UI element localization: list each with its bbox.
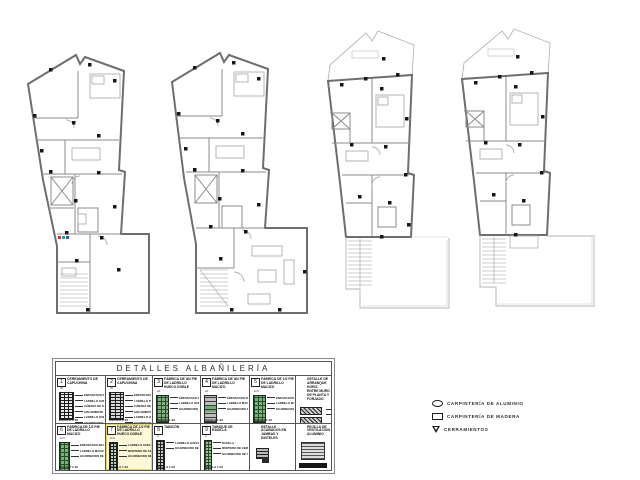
detail-number: 4	[202, 378, 211, 387]
detail-labels: LADRILLO HUECO DOBLEGUARNECIDO DE YESO	[166, 441, 199, 451]
floor-plan-2	[160, 22, 315, 322]
detail-drawing	[109, 392, 124, 420]
detail-label: LADRILLO HUECO DOBLE	[166, 441, 199, 445]
detail-dimension: 11.5	[110, 437, 151, 440]
legend-label: CARPINTERÍA DE MADERA	[447, 414, 520, 419]
detail-label: ENFOSCADO DE MORTERO 1:6	[267, 396, 294, 400]
detail-label: GUARNECIDO DE YESO	[119, 454, 151, 458]
detail-label: CÁMARA DE AIRE	[125, 404, 151, 408]
detail-label: LADRILLO PERFORADO VISTO	[125, 399, 151, 403]
legend-item: CARPINTERÍA DE ALUMINIO	[432, 397, 552, 410]
detail-label: GUARNECIDO DE YESO	[213, 452, 248, 456]
detail-label: ENFOSCADO DE MORTERO 1:6	[125, 393, 151, 397]
detail-drawing	[301, 442, 325, 460]
detail-cell: DETALLE ACABADOS EN JAMBAS Y DINTELES	[250, 424, 296, 471]
detail-label: LADRILLO MACIZO	[267, 401, 294, 405]
floor-plan-3	[320, 25, 460, 315]
detail-labels: RASILLAMORTERO DE CEMENTOGUARNECIDO DE Y…	[213, 441, 248, 456]
detail-title: FÁBRICA DE 1/2 PIE DE LADRILLO HUECO DOB…	[117, 425, 151, 438]
detail-number: 8	[154, 426, 163, 435]
detail-dimension: 11.5	[254, 390, 294, 393]
detail-scale: ESCALA 1:10	[59, 419, 104, 422]
detail-title: DETALLE DE ARRANQUE HORIZ. ENTRE MURO DE…	[307, 377, 330, 401]
detail-dimension: 4	[205, 435, 248, 438]
detail-label: FORJADO	[326, 413, 330, 417]
detail-labels: LADRILLO HUECO DOBLEMORTERO DE CEMENTOGU…	[119, 443, 151, 458]
detail-label: MORTERO DE CEMENTO	[213, 446, 248, 450]
detail-label: GUARNECIDO DE YESO	[170, 407, 199, 411]
detail-scale: ESCALA 1:10	[204, 466, 248, 469]
detail-number	[297, 378, 306, 387]
detail-dimension: 11.5	[60, 437, 104, 440]
detail-dimension	[300, 401, 330, 404]
detail-title: TABICÓN	[164, 425, 179, 430]
detail-labels: ENFOSCADO DE MORTERO 1:6LADRILLO MACIZOG…	[267, 396, 294, 411]
detail-label: ENFOSCADO DE MORTERO 1:6	[218, 396, 248, 400]
detail-dimension: 9	[157, 435, 199, 438]
detail-dimension: 29	[60, 387, 104, 390]
detail-labels: ENFOSCADO DE MORTERO 1:6LADRILLO HUECO D…	[170, 396, 199, 411]
detail-label: GUARNECIDO DE YESO	[218, 407, 248, 411]
detail-number: 5	[251, 378, 260, 387]
detail-label: LADRILLO HUECO DOBLE	[170, 401, 199, 405]
details-row-2: 6 FÁBRICA DE 1/2 PIE DE LADRILLO MACIZO …	[56, 424, 331, 471]
detail-scale: ESCALA 1:10	[253, 419, 294, 422]
oval-icon	[432, 400, 443, 407]
detail-cell: 6 FÁBRICA DE 1/2 PIE DE LADRILLO MACIZO …	[56, 424, 106, 471]
detail-dimension: 24	[157, 390, 199, 393]
legend-item: CARPINTERÍA DE MADERA	[432, 410, 552, 423]
detail-number: 7	[107, 426, 116, 435]
detail-title: FÁBRICA DE UN PIE DE LADRILLO HUECO DOBL…	[164, 377, 199, 390]
detail-title: FÁBRICA DE UN PIE DE LADRILLO MACIZO	[212, 377, 248, 390]
triangle-icon	[432, 426, 440, 433]
detail-dimension: 24	[205, 390, 248, 393]
detail-number: 6	[57, 426, 66, 435]
detail-label: RASILLA	[213, 441, 248, 445]
detail-title: REJILLA DE VENTILACIÓN ALUMINIO	[307, 425, 330, 438]
legend-label: CARPINTERÍA DE ALUMINIO	[447, 401, 524, 406]
detail-label: ENFOSCADO DE MORTERO 1:6	[71, 443, 104, 447]
drawing-sheet: DETALLES ALBAÑILERÍA 1 CERRAMIENTO DE CA…	[0, 0, 640, 480]
detail-cell: 3 FÁBRICA DE UN PIE DE LADRILLO HUECO DO…	[153, 376, 201, 423]
detail-title: TABIQUE DE RASILLA	[212, 425, 248, 434]
detail-number: 3	[154, 378, 163, 387]
detail-scale: ESCALA 1:10	[109, 466, 151, 469]
rect-icon	[432, 413, 443, 420]
detail-cell: 2 CERRAMIENTO DE CAPUCHINA 29 ENFOSCADO …	[106, 376, 153, 423]
detail-label: ENFOSCADO DE MORTERO 1:6	[170, 396, 199, 400]
detail-dimension	[254, 441, 294, 444]
detail-title: FÁBRICA DE 1/2 PIE DE LADRILLO MACIZO	[261, 377, 294, 390]
detail-labels: MURO DE CARGAFORJADO	[326, 407, 330, 417]
detail-number	[251, 426, 260, 435]
detail-label: ENFOSCADO DE MORTERO 1:6	[75, 393, 104, 397]
detail-label: AISLAMIENTO TÉRMICO	[125, 410, 151, 414]
detail-labels: ENFOSCADO DE MORTERO 1:6LADRILLO MACIZOG…	[218, 396, 248, 411]
detail-cell: 8 TABICÓN 9 LADRILLO HUECO DOBLEGUARNECI…	[153, 424, 201, 471]
detail-cell: 9 TABIQUE DE RASILLA 4 RASILLAMORTERO DE…	[201, 424, 250, 471]
detail-drawing	[299, 406, 325, 422]
detail-drawing	[253, 446, 271, 464]
detail-label: LADRILLO HUECO DOBLE	[119, 443, 151, 447]
detail-label: LADRILLO MACIZO	[71, 449, 104, 453]
detail-label: GUARNECIDO DE YESO	[71, 454, 104, 458]
detail-scale: ESCALA 1:10	[156, 466, 199, 469]
detail-cell: 7 FÁBRICA DE 1/2 PIE DE LADRILLO HUECO D…	[106, 424, 153, 471]
detail-dimension	[300, 437, 330, 440]
detail-scale: ESCALA 1:10	[204, 419, 248, 422]
detail-label: LADRILLO MACIZO	[218, 401, 248, 405]
details-table: DETALLES ALBAÑILERÍA 1 CERRAMIENTO DE CA…	[55, 361, 332, 471]
detail-title: CERRAMIENTO DE CAPUCHINA	[117, 377, 151, 386]
detail-cell: 4 FÁBRICA DE UN PIE DE LADRILLO MACIZO 2…	[201, 376, 250, 423]
detail-title: DETALLE ACABADOS EN JAMBAS Y DINTELES	[261, 425, 294, 442]
detail-cell: DETALLE DE ARRANQUE HORIZ. ENTRE MURO DE…	[296, 376, 331, 423]
legend-label: CERRAMIENTOS	[444, 427, 488, 432]
detail-scale: ESCALA 1:10	[156, 419, 199, 422]
detail-number: 1	[57, 378, 66, 387]
details-table-title: DETALLES ALBAÑILERÍA	[56, 362, 331, 376]
detail-number	[297, 426, 306, 435]
detail-number: 2	[107, 378, 116, 387]
detail-number: 9	[202, 426, 211, 435]
detail-dimension: 29	[110, 387, 151, 390]
legend: CARPINTERÍA DE ALUMINIO CARPINTERÍA DE M…	[432, 397, 552, 436]
detail-label: CÁMARA DE AIRE	[75, 404, 104, 408]
detail-cell: 5 FÁBRICA DE 1/2 PIE DE LADRILLO MACIZO …	[250, 376, 296, 423]
detail-drawing	[59, 392, 74, 420]
detail-label: AISLAMIENTO TÉRMICO	[75, 410, 104, 414]
details-row-1: 1 CERRAMIENTO DE CAPUCHINA 29 ENFOSCADO …	[56, 376, 331, 424]
detail-title: FÁBRICA DE 1/2 PIE DE LADRILLO MACIZO	[67, 425, 104, 438]
detail-label: GUARNECIDO DE YESO	[267, 407, 294, 411]
detail-cell: 1 CERRAMIENTO DE CAPUCHINA 29 ENFOSCADO …	[56, 376, 106, 423]
detail-scale: ESCALA 1:10	[59, 466, 104, 469]
legend-item: CERRAMIENTOS	[432, 423, 552, 436]
floor-plan-4	[452, 25, 602, 315]
detail-label: GUARNECIDO DE YESO	[166, 446, 199, 450]
detail-title: CERRAMIENTO DE CAPUCHINA	[67, 377, 104, 386]
detail-label: MURO DE CARGA	[326, 407, 330, 411]
detail-labels: ENFOSCADO DE MORTERO 1:6LADRILLO MACIZOG…	[71, 443, 104, 458]
detail-label: LADRILLO HUECO SENCILLO	[75, 399, 104, 403]
detail-scale: ESCALA 1:10	[109, 419, 151, 422]
floor-plan-1	[18, 22, 158, 322]
detail-cell: REJILLA DE VENTILACIÓN ALUMINIO	[296, 424, 331, 471]
detail-label: MORTERO DE CEMENTO	[119, 449, 151, 453]
